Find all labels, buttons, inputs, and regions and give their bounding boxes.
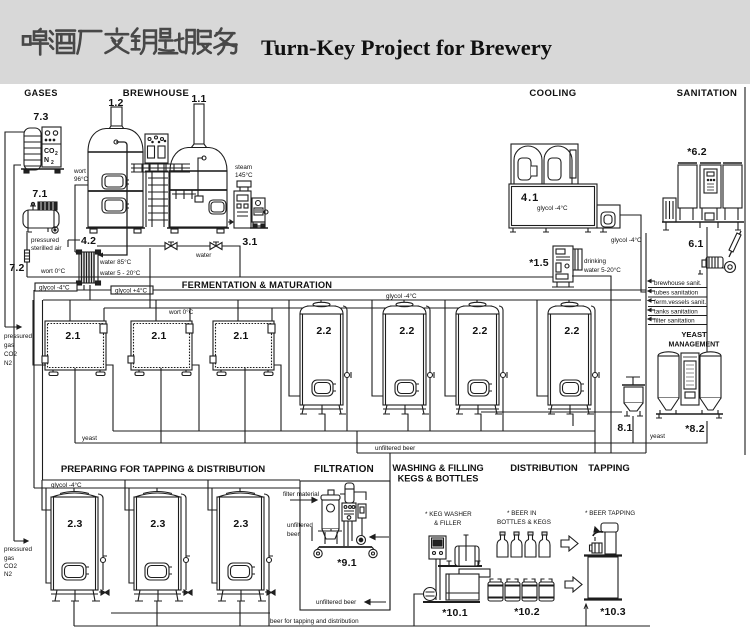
svg-text:2.2: 2.2 (564, 325, 579, 337)
svg-text:*1.5: *1.5 (529, 257, 548, 269)
svg-text:2.2: 2.2 (472, 325, 487, 337)
svg-text:CO2: CO2 (4, 563, 17, 570)
svg-text:wort 0°C: wort 0°C (40, 267, 66, 275)
svg-text:N: N (44, 157, 49, 164)
svg-text:2: 2 (51, 160, 54, 166)
svg-text:* KEG WASHER: * KEG WASHER (425, 511, 472, 518)
svg-text:CO2: CO2 (4, 351, 17, 358)
svg-text:BREWHOUSE: BREWHOUSE (123, 88, 189, 99)
svg-text:tubes sanitation: tubes sanitation (654, 290, 699, 297)
svg-text:1.1: 1.1 (191, 93, 206, 105)
svg-text:unfiltered beer: unfiltered beer (316, 599, 356, 606)
svg-text:SANITATION: SANITATION (677, 88, 738, 99)
svg-text:water 5-20°C: water 5-20°C (583, 266, 621, 274)
svg-text:4.2: 4.2 (81, 235, 96, 247)
svg-text:yeast: yeast (82, 435, 97, 442)
svg-text:glycol -4°C: glycol -4°C (611, 236, 642, 244)
svg-text:pressured: pressured (4, 546, 32, 553)
svg-text:2.3: 2.3 (67, 518, 82, 530)
svg-text:WASHING & FILLING: WASHING & FILLING (392, 463, 483, 473)
svg-text:3.1: 3.1 (242, 236, 257, 248)
svg-text:beer for tapping and distribut: beer for tapping and distribution (270, 618, 359, 625)
svg-text:DISTRIBUTION: DISTRIBUTION (510, 463, 578, 474)
svg-text:* BEER IN: * BEER IN (507, 510, 537, 517)
svg-text:brewhouse sanit.: brewhouse sanit. (654, 280, 702, 287)
svg-text:wort: wort (73, 168, 86, 175)
svg-text:*10.1: *10.1 (442, 607, 468, 619)
svg-text:* BEER TAPPING: * BEER TAPPING (585, 510, 635, 517)
svg-text:water 85°C: water 85°C (99, 258, 132, 266)
svg-text:2.1: 2.1 (151, 330, 166, 342)
svg-text:& FILLER: & FILLER (434, 520, 462, 527)
svg-text:gas: gas (4, 342, 14, 349)
svg-text:gas: gas (4, 555, 14, 562)
svg-text:water: water (195, 252, 211, 259)
svg-text:BOTTLES & KEGS: BOTTLES & KEGS (497, 519, 551, 526)
svg-text:2: 2 (55, 151, 58, 157)
svg-text:FILTRATION: FILTRATION (314, 464, 374, 475)
svg-text:glycol -4°C: glycol -4°C (537, 204, 568, 212)
svg-text:COOLING: COOLING (529, 88, 576, 99)
svg-text:steam: steam (235, 164, 252, 171)
svg-text:TAPPING: TAPPING (588, 463, 630, 474)
svg-text:2.2: 2.2 (399, 325, 414, 337)
svg-text:*6.2: *6.2 (687, 146, 706, 158)
svg-text:glycol -4°C: glycol -4°C (39, 284, 70, 292)
svg-text:yeast: yeast (650, 433, 665, 440)
svg-text:PREPARING FOR TAPPING & DISTRI: PREPARING FOR TAPPING & DISTRIBUTION (61, 464, 265, 475)
svg-text:ferm.vessels sanit.: ferm.vessels sanit. (654, 299, 706, 306)
svg-text:Turn-Key Project for Brewery: Turn-Key Project for Brewery (261, 35, 553, 60)
svg-text:KEGS & BOTTLES: KEGS & BOTTLES (398, 474, 479, 484)
svg-text:GASES: GASES (24, 88, 58, 98)
svg-text:145°C: 145°C (235, 171, 253, 179)
svg-text:2.3: 2.3 (233, 518, 248, 530)
svg-text:7.2: 7.2 (9, 262, 24, 274)
svg-text:2.3: 2.3 (150, 518, 165, 530)
svg-text:glycol -4°C: glycol -4°C (51, 481, 82, 489)
svg-text:MANAGEMENT: MANAGEMENT (669, 342, 721, 349)
svg-text:6.1: 6.1 (688, 238, 703, 250)
svg-text:water 5 - 20°C: water 5 - 20°C (99, 269, 141, 277)
svg-text:7.3: 7.3 (33, 111, 48, 123)
svg-text:2.2: 2.2 (316, 325, 331, 337)
svg-text:tanks sanitation: tanks sanitation (654, 309, 698, 316)
svg-text:CO: CO (44, 148, 55, 155)
svg-text:unfiltered: unfiltered (287, 522, 313, 529)
svg-text:4.1: 4.1 (521, 192, 539, 204)
svg-text:2.1: 2.1 (65, 330, 80, 342)
svg-text:pressured: pressured (4, 333, 32, 340)
svg-text:sterilled air: sterilled air (31, 245, 61, 252)
svg-text:*9.1: *9.1 (337, 557, 356, 569)
svg-text:glycol -4°C: glycol -4°C (386, 292, 417, 300)
svg-text:7.1: 7.1 (32, 188, 47, 200)
svg-text:N2: N2 (4, 571, 13, 578)
svg-text:filter material: filter material (283, 491, 319, 498)
svg-text:drinking: drinking (584, 258, 607, 265)
svg-text:YEAST: YEAST (681, 330, 707, 339)
svg-text:*10.3: *10.3 (600, 606, 626, 618)
svg-text:filter sanitation: filter sanitation (654, 318, 695, 325)
svg-text:2.1: 2.1 (233, 330, 248, 342)
svg-text:N2: N2 (4, 360, 13, 367)
svg-text:8.1: 8.1 (617, 422, 632, 434)
svg-text:*10.2: *10.2 (514, 606, 540, 618)
svg-text:unfiltered beer: unfiltered beer (375, 445, 415, 452)
svg-text:*8.2: *8.2 (685, 423, 704, 435)
svg-text:96°C: 96°C (74, 175, 89, 183)
svg-text:glycol +4°C: glycol +4°C (115, 287, 148, 295)
svg-text:beer: beer (287, 531, 300, 538)
svg-text:pressured: pressured (31, 237, 59, 244)
svg-text:FERMENTATION & MATURATION: FERMENTATION & MATURATION (182, 280, 333, 290)
